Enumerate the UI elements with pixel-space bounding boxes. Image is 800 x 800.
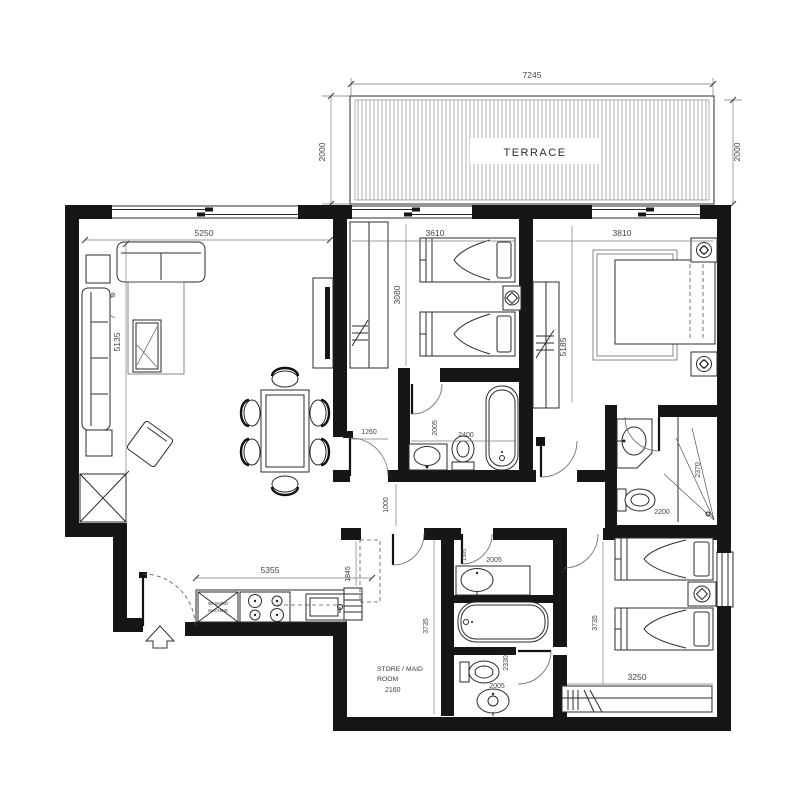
dim-master-width: 3810 [613, 228, 632, 238]
sofa-top [117, 242, 205, 282]
dim-bedroom2-height: 3735 [592, 615, 599, 631]
dim-terrace-depth-right: 2000 [732, 142, 742, 161]
living-room [82, 242, 333, 495]
dim-kitchen-width: 5355 [261, 565, 280, 575]
bedroom2 [562, 538, 716, 712]
dim-living-width: 5250 [195, 228, 214, 238]
store-label-2: ROOM [377, 676, 398, 683]
hall-door [350, 438, 388, 476]
dim-bath2-top: 2005 [486, 557, 502, 564]
sofa-left [82, 288, 110, 430]
window-master [592, 206, 700, 218]
coffee-table [133, 320, 161, 372]
dim-kitchen-depth: 1845 [345, 566, 352, 582]
dim-ensuite-width: 2200 [654, 509, 670, 516]
dim-master-height: 5185 [558, 337, 568, 356]
side-table [86, 255, 110, 283]
master-nightstand-top [691, 238, 717, 262]
washing-machine: WASHING MACHINE [198, 592, 238, 622]
kitchen-sink [306, 594, 346, 620]
bath2-toilet [460, 661, 499, 683]
hob [240, 592, 290, 622]
master-bedroom [533, 238, 717, 408]
floor-plan-canvas: TERRACE 7245 2000 2000 [0, 0, 800, 800]
ensuite-toilet [617, 489, 655, 511]
terrace-label: TERRACE [503, 147, 566, 159]
bathroom2 [456, 566, 548, 716]
store-door [393, 534, 424, 565]
dim-bedroom1-width: 3610 [426, 228, 445, 238]
bath2-sink [456, 566, 530, 595]
dim-bath1-width: 2400 [458, 432, 474, 439]
boiler-dashed [360, 540, 380, 602]
tv-screen [325, 287, 330, 359]
dim-store-width: 2160 [385, 687, 401, 694]
entry [143, 574, 195, 648]
dim-living-height: 5135 [112, 332, 122, 351]
dim-hall-door: 1260 [361, 429, 377, 436]
end-table [86, 430, 112, 456]
bath1-bathtub [486, 386, 518, 470]
bath1-door [412, 384, 442, 414]
bath2-bathtub [458, 602, 548, 642]
window-living [112, 206, 298, 218]
bath1-sink [409, 444, 447, 470]
washing-machine-label-2: MACHINE [208, 608, 228, 613]
tv-unit [313, 278, 333, 368]
entry-arrow-icon [146, 626, 174, 648]
ensuite-sink [617, 419, 652, 468]
dining-set [241, 368, 329, 495]
bedroom1-bed1 [420, 238, 515, 282]
bedroom1-nightstand [503, 286, 521, 310]
bedroom2-door [564, 534, 598, 568]
dim-store-height: 3735 [423, 618, 430, 634]
store-maid-room: STORE / MAID ROOM 2160 [377, 666, 423, 694]
floor-plan-page: TERRACE 7245 2000 2000 [0, 0, 800, 800]
master-bed [615, 260, 715, 344]
bath2-wc-door [518, 651, 551, 684]
dim-bath2-door: 1305 [462, 549, 468, 561]
tall-unit [344, 588, 362, 620]
kitchen: WASHING MACHINE [196, 540, 380, 622]
master-door [541, 441, 577, 477]
ensuite-shower [664, 417, 714, 522]
bath2-basin [477, 689, 509, 716]
master-wardrobe [533, 282, 559, 408]
dining-table [261, 390, 309, 472]
dim-bath2-height: 2330 [503, 655, 510, 671]
bedroom1-wardrobe [350, 222, 388, 368]
washing-machine-label-1: WASHING [208, 601, 229, 606]
dim-terrace-width: 7245 [523, 70, 542, 80]
window-bedroom2 [717, 548, 733, 611]
bedroom1-bed2 [420, 312, 515, 356]
terrace: TERRACE [350, 96, 714, 204]
bedroom2-bed1 [615, 538, 713, 580]
entrance-door-swing [143, 574, 195, 626]
dim-bath2-bottom: 2005 [489, 683, 505, 690]
bedroom2-wardrobe [562, 686, 712, 712]
bathroom1 [409, 386, 518, 470]
master-nightstand-bottom [691, 352, 717, 376]
bedroom2-nightstand [688, 582, 716, 606]
dim-ensuite-height: 2370 [695, 462, 702, 478]
dim-terrace-depth-left: 2000 [317, 142, 327, 161]
bedroom2-bed2 [615, 608, 713, 650]
shaft [80, 474, 126, 522]
bedroom1 [350, 222, 521, 368]
window-bedroom1 [352, 206, 472, 218]
dim-bath1-height: 2005 [432, 420, 439, 436]
dim-bedroom1-height: 3080 [392, 285, 402, 304]
dim-corridor: 1000 [383, 497, 390, 513]
armchair [126, 420, 173, 467]
dim-bedroom2-width: 3250 [628, 672, 647, 682]
store-label-1: STORE / MAID [377, 666, 423, 673]
